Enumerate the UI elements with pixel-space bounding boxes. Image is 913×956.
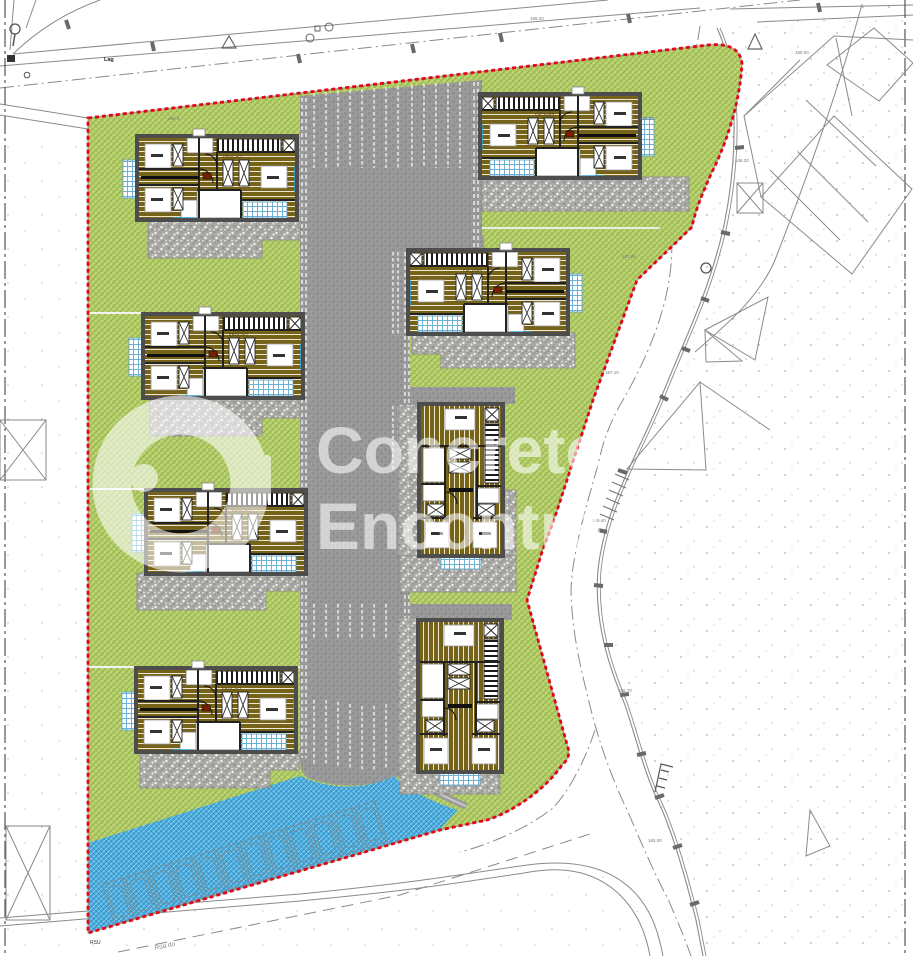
svg-text:Concrete: Concrete [316, 413, 602, 487]
svg-text:167.80: 167.80 [622, 254, 636, 259]
svg-text:168.50: 168.50 [640, 116, 654, 121]
svg-text:165.70: 165.70 [618, 688, 632, 693]
svg-text:Lag: Lag [104, 57, 114, 63]
svg-text:Encontre.: Encontre. [316, 489, 620, 563]
svg-text:167.10: 167.10 [605, 370, 619, 375]
svg-text:169.4: 169.4 [168, 116, 180, 121]
svg-text:168.20: 168.20 [735, 158, 749, 163]
svg-text:165.00: 165.00 [648, 838, 662, 843]
svg-text:169.00: 169.00 [795, 50, 809, 55]
svg-text:169.20: 169.20 [530, 16, 544, 21]
svg-text:RSU: RSU [90, 940, 101, 946]
